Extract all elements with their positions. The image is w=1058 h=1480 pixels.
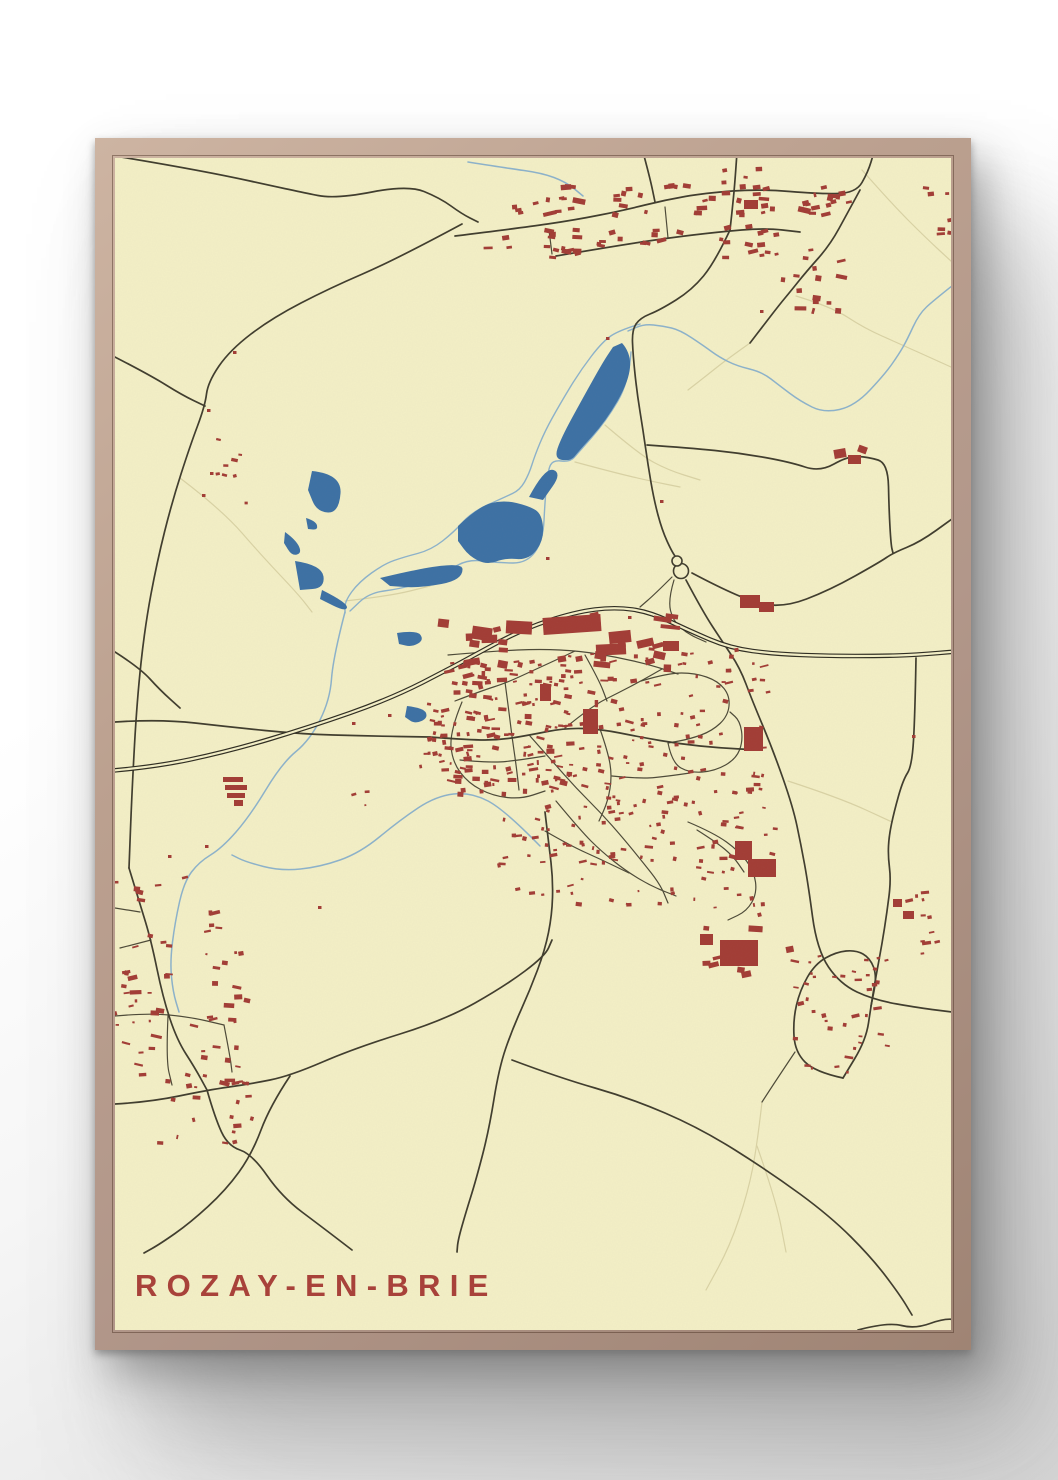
map-svg — [115, 158, 951, 1330]
photo-scene: ROZAY-EN-BRIE — [0, 0, 1058, 1480]
map-poster: ROZAY-EN-BRIE — [115, 158, 951, 1330]
picture-frame: ROZAY-EN-BRIE — [95, 138, 971, 1350]
map-title: ROZAY-EN-BRIE — [135, 1270, 498, 1301]
